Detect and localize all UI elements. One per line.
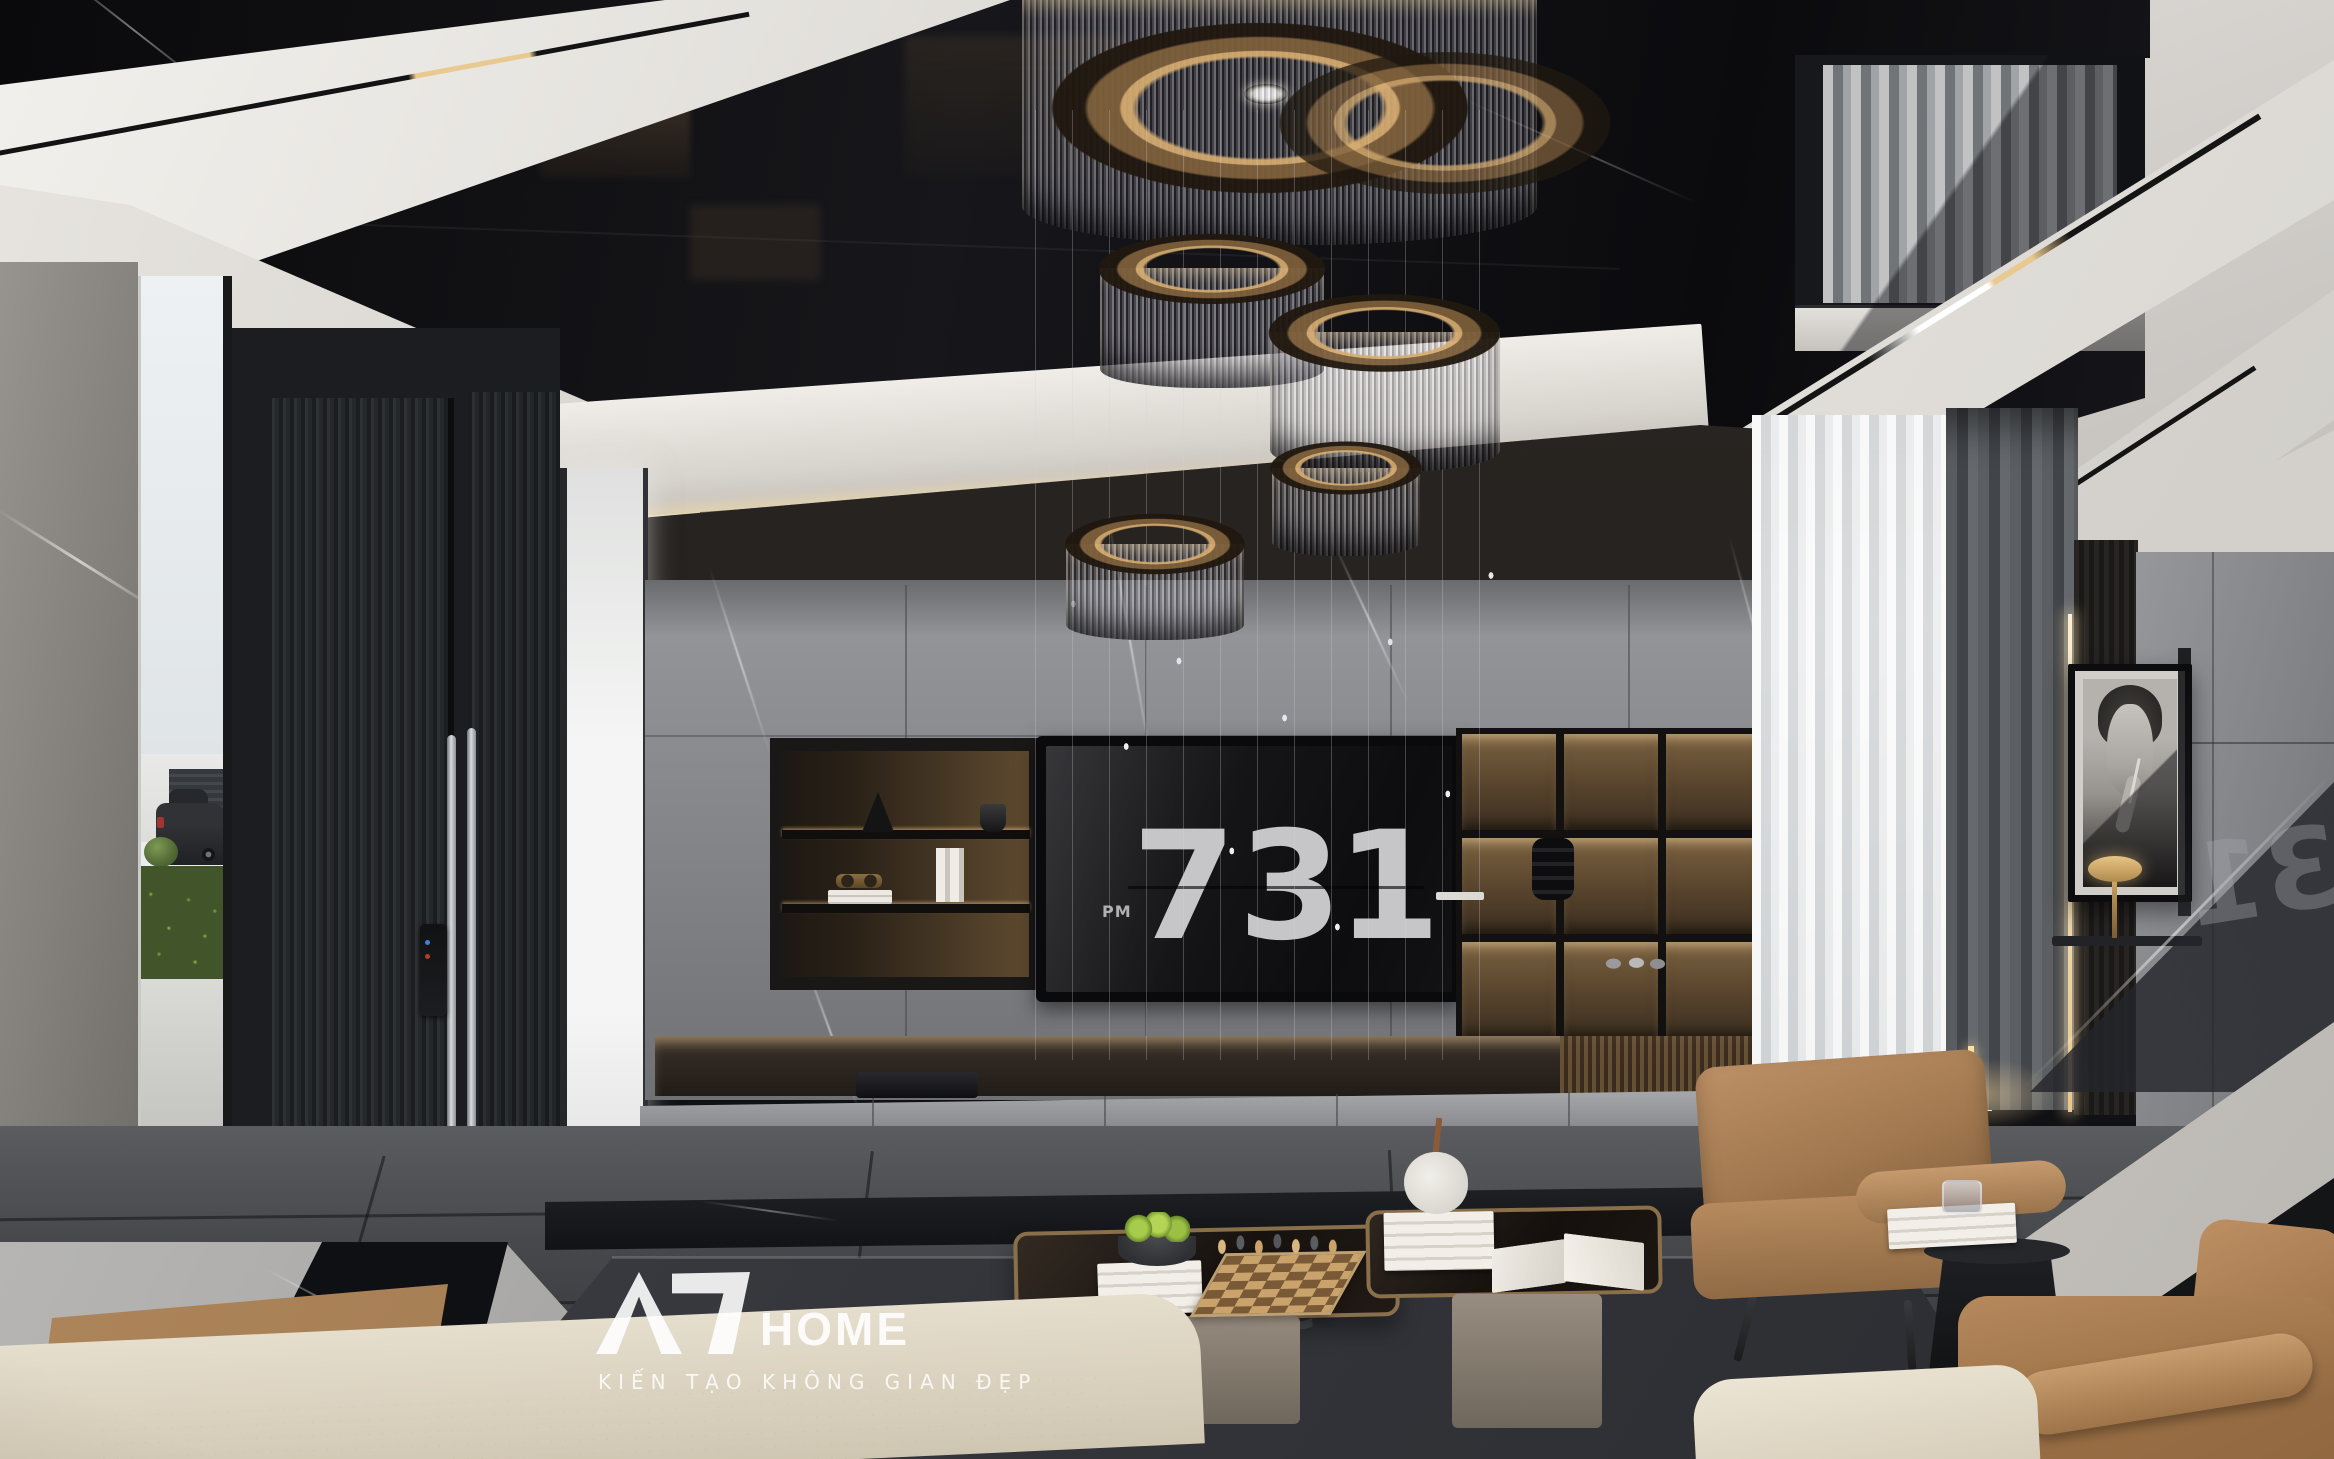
small-bowls-decor [1598,954,1668,970]
black-disc-sculpture [1532,838,1574,900]
glass-sheen-overlay [2083,679,2177,887]
standing-books [936,848,964,902]
logo-d-icon [672,1272,750,1354]
shelf-compartment [1564,838,1658,934]
car-tail-light [157,817,164,829]
car-wheel [202,848,215,861]
logo-wordmark: HOME [760,1306,910,1352]
table-lamp-stem [2112,878,2117,938]
display-niche [770,738,1042,990]
shelf-compartment [1666,734,1760,830]
chandelier-bronze-ring [1266,440,1426,496]
clock-reflection-in-glass: 31 [2214,809,2334,936]
open-magazine [1564,1233,1644,1291]
book-stack [828,890,892,904]
bronze-niche-back [783,751,1029,977]
glass-cup-decor [1942,1180,1982,1214]
ceiling-reflection [690,205,820,280]
chandelier-bronze-ring [1092,232,1332,306]
nesting-table-base [1452,1294,1602,1428]
cream-ottoman [1692,1363,2041,1459]
shelf-compartment [1666,942,1760,1038]
white-book-stack [1384,1211,1495,1271]
smart-lock-indicator [425,940,430,945]
logo-tagline: KIẾN TẠO KHÔNG GIAN ĐẸP [598,1372,1037,1392]
niche-shelf [782,904,1030,913]
chandelier-bronze-ring [1060,512,1250,576]
adhome-watermark: HOME KIẾN TẠO KHÔNG GIAN ĐẸP [596,1268,926,1410]
chess-pieces [1214,1230,1346,1258]
smart-door-lock [420,924,447,1016]
entry-window-view [138,276,232,1252]
decor-object [836,874,882,888]
table-lamp-shade [2088,856,2142,882]
chandelier-bronze-ring [1262,292,1507,374]
shelf-compartment [1564,734,1658,830]
shelf-compartment [1666,838,1760,934]
living-room-render: PM 7 31 [0,0,2334,1459]
soundbar [856,1072,978,1098]
cup-decor [980,804,1006,832]
logo-triangle-a-icon [596,1272,682,1354]
green-apples [1124,1212,1190,1242]
portrait-photo [2083,679,2177,887]
white-sculpture [1404,1152,1468,1214]
gray-drape [1946,408,2078,1110]
green-hedge [141,866,223,978]
